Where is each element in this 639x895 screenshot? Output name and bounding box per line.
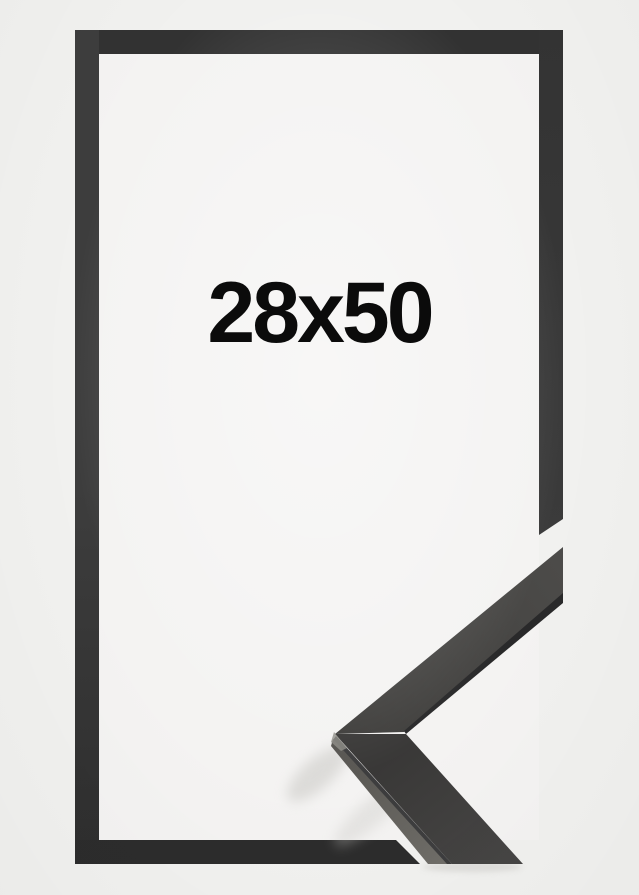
frame-inner-area: [99, 54, 539, 840]
product-image-canvas: 28x50: [0, 0, 639, 895]
frame-outline-top-bar: [75, 30, 563, 54]
frame-outline-left-bar: [75, 30, 99, 864]
frame-illustration: [0, 0, 639, 895]
frame-outline-bottom-bar: [75, 840, 420, 864]
frame-size-label: 28x50: [0, 270, 639, 356]
